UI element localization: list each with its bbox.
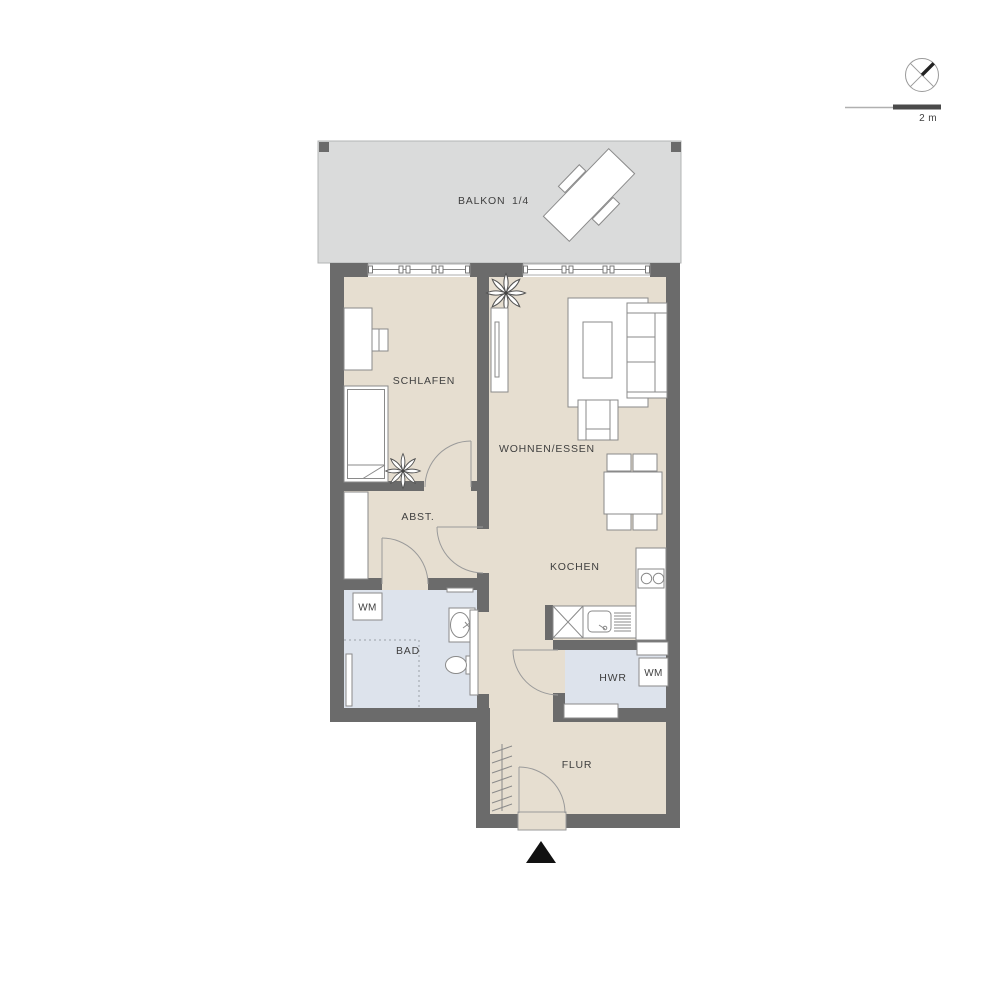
dining-table: [604, 472, 662, 514]
floor-plan-canvas: BALKON 1/4: [0, 0, 1000, 1000]
wohnen-label: WOHNEN/ESSEN: [499, 443, 595, 455]
bath-mirror: [447, 588, 473, 592]
coffee-table: [583, 322, 612, 378]
wall-bath-bottom: [330, 708, 490, 722]
bad-label: BAD: [396, 645, 420, 657]
wall-schlafen-wohnen: [477, 277, 489, 481]
wall-flur-bottom-right: [566, 814, 680, 828]
wm-hwr-label: WM: [644, 668, 663, 679]
flur-label: FLUR: [562, 759, 593, 771]
bed: [344, 386, 388, 482]
floor-plan-page: BALKON 1/4: [0, 0, 1000, 1000]
dining-chair: [633, 454, 657, 471]
wall-abst-right-top: [477, 491, 489, 529]
plant-icon: [386, 454, 421, 489]
entrance-marker: [526, 841, 556, 863]
drainboard: [614, 613, 631, 631]
wall-flur-left: [476, 708, 490, 828]
plant-icon: [487, 274, 526, 313]
balcony-post-right: [671, 142, 681, 152]
wall-bad-top-left: [344, 578, 382, 590]
washing-machine-bad: WM: [353, 593, 382, 620]
scale-bar: 2 m: [845, 105, 941, 125]
scale-label: 2 m: [919, 113, 937, 124]
wall-right-exterior: [666, 263, 680, 828]
kitchen-counter-bottom: [553, 606, 636, 638]
hwr-shelf: [564, 704, 618, 718]
sofa: [627, 303, 667, 398]
wall-bad-right-bottom: [477, 694, 489, 722]
wall-top-pier: [470, 263, 523, 277]
bath-shelf: [346, 654, 352, 706]
window-wohnen: [523, 264, 650, 275]
balkon-fraction-label: 1/4: [512, 195, 529, 207]
hwr-label: HWR: [599, 672, 626, 684]
hwr-counter: [637, 642, 668, 655]
schlafen-label: SCHLAFEN: [393, 375, 455, 387]
window-schlafen: [368, 264, 470, 275]
dining-set: [604, 454, 662, 530]
balkon-label: BALKON: [458, 195, 505, 207]
compass-icon: [906, 59, 939, 92]
bad-sliding-door: [470, 610, 478, 695]
desk-chair: [372, 329, 388, 351]
wall-left-exterior: [330, 263, 344, 722]
abst-label: ABST.: [401, 511, 434, 523]
dining-chair: [633, 513, 657, 530]
dining-chair: [607, 454, 631, 471]
wall-flur-bottom-left: [476, 814, 518, 828]
wm-bad-label: WM: [358, 603, 377, 614]
abst-wardrobe: [344, 492, 368, 579]
desk: [344, 308, 372, 370]
wall-kitchen-stub: [545, 605, 553, 640]
wall-schlafen-bottom-stub: [471, 481, 489, 491]
sideboard: [491, 308, 508, 392]
wall-bad-right-top: [477, 590, 489, 612]
balcony-post-left: [319, 142, 329, 152]
kochen-label: KOCHEN: [550, 561, 600, 573]
kitchen-counter-right: [636, 548, 666, 640]
dining-chair: [607, 513, 631, 530]
armchair: [578, 400, 618, 440]
washing-machine-hwr: WM: [639, 658, 668, 686]
